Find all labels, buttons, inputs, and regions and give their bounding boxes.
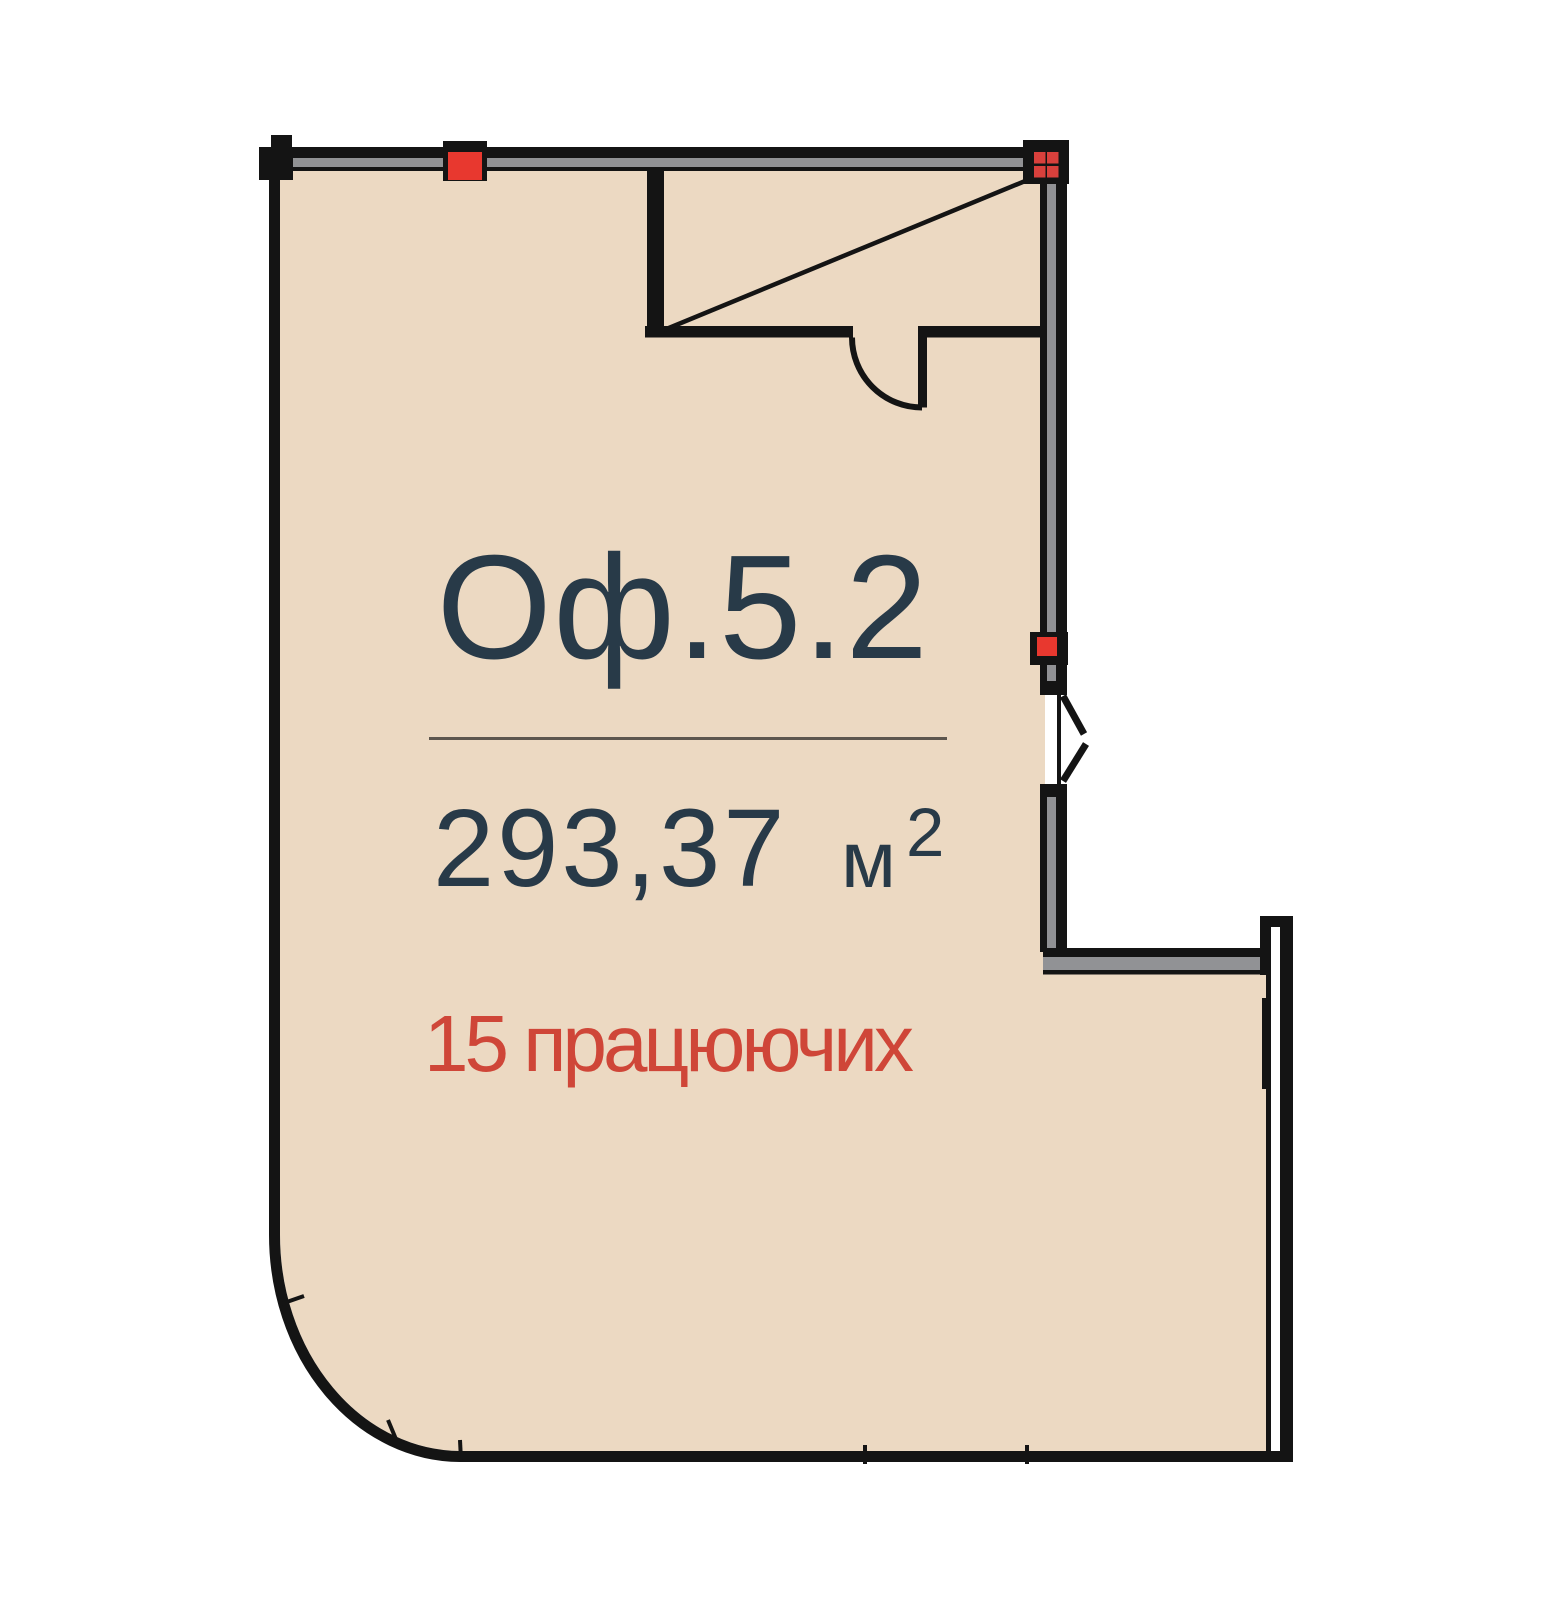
- svg-text:293,37: 293,37: [433, 787, 787, 910]
- svg-text:м: м: [841, 815, 896, 904]
- svg-text:15 працюючих: 15 працюючих: [424, 999, 914, 1088]
- svg-text:2: 2: [906, 794, 944, 871]
- svg-text:Оф.5.2: Оф.5.2: [437, 525, 930, 690]
